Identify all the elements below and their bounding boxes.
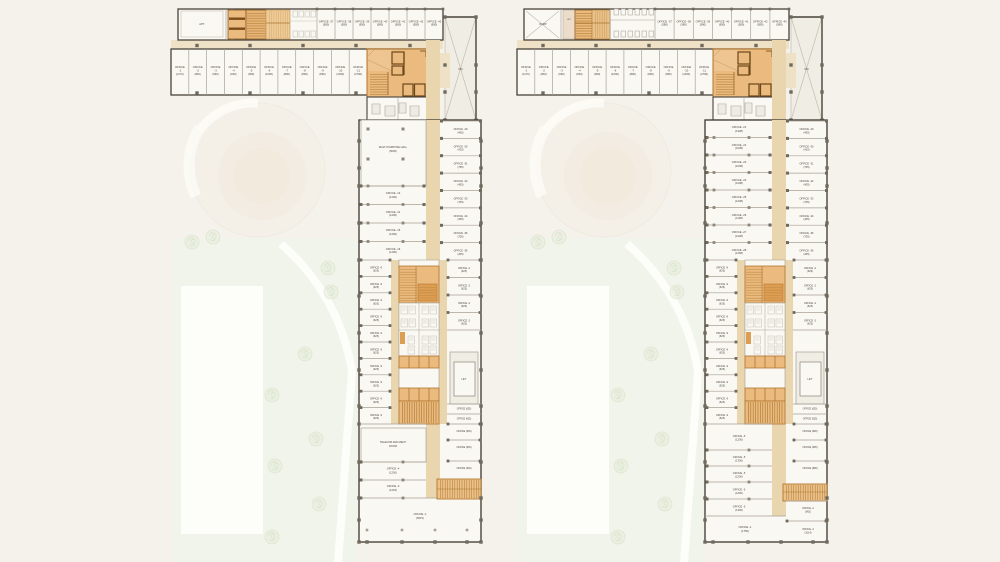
svg-text:(625): (625) bbox=[373, 286, 379, 289]
svg-text:OFFICE -2: OFFICE -2 bbox=[802, 528, 814, 531]
svg-text:(625): (625) bbox=[719, 302, 725, 305]
svg-text:(580): (580) bbox=[359, 23, 365, 27]
svg-text:OFFICE -33: OFFICE -33 bbox=[800, 196, 815, 200]
svg-text:OFFICE: OFFICE bbox=[211, 65, 221, 69]
svg-text:(690): (690) bbox=[558, 72, 564, 76]
svg-text:STA: STA bbox=[804, 68, 809, 71]
svg-text:OFFICE: OFFICE bbox=[282, 65, 292, 69]
svg-text:(625): (625) bbox=[373, 270, 379, 273]
svg-text:OFFICE -21: OFFICE -21 bbox=[732, 125, 747, 129]
svg-text:OFFICE: OFFICE bbox=[699, 65, 709, 69]
svg-text:(625): (625) bbox=[719, 401, 725, 404]
svg-text:(630): (630) bbox=[576, 72, 582, 76]
svg-text:(1200): (1200) bbox=[389, 195, 397, 199]
svg-text:(580): (580) bbox=[661, 23, 667, 27]
svg-text:OFFICE -4: OFFICE -4 bbox=[387, 467, 400, 471]
svg-text:OFFICE -26: OFFICE -26 bbox=[732, 213, 747, 217]
svg-text:OFFICE -30: OFFICE -30 bbox=[454, 144, 469, 148]
svg-text:OFFICE: OFFICE bbox=[300, 65, 310, 69]
svg-text:(625): (625) bbox=[719, 335, 725, 338]
svg-text:OFFICE: OFFICE bbox=[521, 65, 531, 69]
svg-text:OFFICE -30: OFFICE -30 bbox=[800, 144, 815, 148]
svg-text:OFFICE (625): OFFICE (625) bbox=[803, 419, 818, 421]
svg-text:(705): (705) bbox=[457, 200, 463, 204]
svg-text:MULTI PURPOSE HALL: MULTI PURPOSE HALL bbox=[379, 145, 408, 149]
svg-text:RAMP: RAMP bbox=[540, 23, 547, 26]
svg-text:OFFICE: OFFICE bbox=[264, 65, 274, 69]
svg-text:(1000): (1000) bbox=[265, 72, 273, 76]
svg-text:(1238): (1238) bbox=[735, 199, 743, 203]
svg-text:(705): (705) bbox=[803, 200, 809, 204]
svg-text:OFFICE -29: OFFICE -29 bbox=[800, 127, 815, 131]
svg-text:OFFICE: OFFICE bbox=[335, 65, 345, 69]
svg-text:(625): (625) bbox=[719, 270, 725, 273]
svg-text:(890): (890) bbox=[630, 72, 636, 76]
svg-text:(580): (580) bbox=[776, 23, 782, 27]
svg-text:(580): (580) bbox=[681, 23, 687, 27]
svg-text:(405): (405) bbox=[457, 252, 463, 256]
svg-text:(5000): (5000) bbox=[389, 149, 397, 153]
svg-text:(890): (890) bbox=[301, 72, 307, 76]
svg-text:(625): (625) bbox=[719, 286, 725, 289]
svg-text:OFFICE: OFFICE bbox=[193, 65, 203, 69]
svg-text:(1750): (1750) bbox=[741, 529, 749, 533]
svg-text:OFFICE -32: OFFICE -32 bbox=[454, 179, 469, 183]
svg-text:(580): (580) bbox=[377, 23, 383, 27]
svg-text:(890): (890) bbox=[319, 72, 325, 76]
svg-text:OFFICE -36: OFFICE -36 bbox=[454, 249, 469, 253]
svg-text:OFFICE -14: OFFICE -14 bbox=[386, 210, 401, 214]
svg-text:STA: STA bbox=[458, 68, 463, 71]
svg-text:OFFICE -28: OFFICE -28 bbox=[732, 248, 747, 252]
svg-text:OFFICE: OFFICE bbox=[681, 65, 691, 69]
svg-text:(705): (705) bbox=[803, 235, 809, 239]
svg-text:(890): (890) bbox=[665, 72, 671, 76]
svg-text:(1200): (1200) bbox=[735, 475, 743, 479]
svg-text:(1138): (1138) bbox=[735, 216, 743, 220]
svg-text:OFFICE -15: OFFICE -15 bbox=[386, 228, 401, 232]
svg-text:(405): (405) bbox=[803, 217, 809, 221]
svg-text:OFFICE -5: OFFICE -5 bbox=[733, 434, 746, 438]
svg-text:OFFICE (930): OFFICE (930) bbox=[456, 467, 471, 470]
svg-text:(1090): (1090) bbox=[336, 72, 344, 76]
svg-text:OFFICE -33: OFFICE -33 bbox=[454, 196, 469, 200]
svg-text:(405): (405) bbox=[457, 182, 463, 186]
svg-text:(1218): (1218) bbox=[389, 488, 397, 492]
svg-text:(625): (625) bbox=[461, 270, 467, 273]
svg-text:(840): (840) bbox=[541, 72, 547, 76]
svg-text:TELECOM AND MECH: TELECOM AND MECH bbox=[380, 441, 406, 444]
svg-text:(405): (405) bbox=[803, 130, 809, 134]
svg-text:(863): (863) bbox=[805, 511, 811, 514]
svg-text:(705): (705) bbox=[803, 165, 809, 169]
svg-text:OFFICE: OFFICE bbox=[646, 65, 656, 69]
svg-text:OFFICE -34: OFFICE -34 bbox=[454, 214, 469, 218]
svg-text:(1200): (1200) bbox=[389, 250, 397, 254]
svg-text:OFFICE -31: OFFICE -31 bbox=[454, 162, 469, 166]
svg-text:(625): (625) bbox=[461, 288, 467, 291]
svg-text:(1268): (1268) bbox=[735, 251, 743, 255]
svg-text:(625): (625) bbox=[373, 352, 379, 355]
svg-text:(705): (705) bbox=[457, 235, 463, 239]
svg-text:(1306): (1306) bbox=[735, 508, 743, 512]
svg-text:LIFT: LIFT bbox=[462, 378, 467, 381]
svg-text:(405): (405) bbox=[457, 130, 463, 134]
svg-text:(705): (705) bbox=[457, 165, 463, 169]
svg-text:OFFICE -35: OFFICE -35 bbox=[454, 231, 469, 235]
svg-text:OFFICE -1: OFFICE -1 bbox=[739, 525, 752, 529]
svg-text:(1000): (1000) bbox=[611, 72, 619, 76]
svg-text:(1238): (1238) bbox=[735, 181, 743, 185]
svg-text:(625): (625) bbox=[807, 323, 813, 326]
svg-text:(1200): (1200) bbox=[735, 438, 743, 442]
svg-text:(580): (580) bbox=[719, 23, 725, 27]
svg-text:(580): (580) bbox=[323, 23, 329, 27]
svg-text:OFFICE -24: OFFICE -24 bbox=[732, 178, 747, 182]
svg-text:OFFICE: OFFICE bbox=[539, 65, 549, 69]
svg-text:OFFICE -32: OFFICE -32 bbox=[800, 179, 815, 183]
svg-text:(625): (625) bbox=[719, 368, 725, 371]
svg-text:(580): (580) bbox=[341, 23, 347, 27]
svg-text:(580): (580) bbox=[738, 23, 744, 27]
svg-text:OFFICE -29: OFFICE -29 bbox=[454, 127, 469, 131]
svg-text:OFFICE -27: OFFICE -27 bbox=[732, 230, 747, 234]
svg-text:OFFICE: OFFICE bbox=[318, 65, 328, 69]
svg-text:OFFICE (625): OFFICE (625) bbox=[457, 419, 472, 421]
svg-text:OFFICE: OFFICE bbox=[246, 65, 256, 69]
svg-text:(1014): (1014) bbox=[805, 532, 812, 535]
svg-text:(1090): (1090) bbox=[682, 72, 690, 76]
svg-text:OFFICE (898): OFFICE (898) bbox=[802, 467, 817, 470]
svg-text:OFFICE (930): OFFICE (930) bbox=[456, 430, 471, 433]
svg-text:APT.: APT. bbox=[199, 22, 205, 26]
svg-text:OFFICE -36: OFFICE -36 bbox=[800, 249, 815, 253]
svg-text:OFFICE: OFFICE bbox=[610, 65, 620, 69]
svg-text:OFFICE (930): OFFICE (930) bbox=[456, 446, 471, 449]
svg-text:OFFICE -31: OFFICE -31 bbox=[800, 162, 815, 166]
svg-text:(410): (410) bbox=[803, 148, 809, 152]
svg-text:(625): (625) bbox=[807, 305, 813, 308]
svg-text:(1170): (1170) bbox=[522, 72, 530, 76]
svg-text:(2790): (2790) bbox=[354, 72, 362, 76]
svg-text:(580): (580) bbox=[395, 23, 401, 27]
svg-text:LIFT: LIFT bbox=[808, 378, 813, 381]
svg-text:OFFICE -5: OFFICE -5 bbox=[733, 455, 746, 459]
svg-text:(690): (690) bbox=[594, 72, 600, 76]
svg-text:(1306): (1306) bbox=[735, 459, 743, 463]
svg-text:(890): (890) bbox=[284, 72, 290, 76]
svg-text:(625): (625) bbox=[461, 323, 467, 326]
svg-text:(625): (625) bbox=[373, 335, 379, 338]
svg-text:(1170): (1170) bbox=[176, 72, 184, 76]
svg-text:(840): (840) bbox=[195, 72, 201, 76]
svg-text:(625): (625) bbox=[719, 319, 725, 322]
svg-text:(625): (625) bbox=[719, 384, 725, 387]
svg-text:OFFICE: OFFICE bbox=[353, 65, 363, 69]
svg-text:OFFICE -16: OFFICE -16 bbox=[386, 247, 401, 251]
svg-text:(625): (625) bbox=[373, 302, 379, 305]
svg-text:-10: -10 bbox=[338, 69, 342, 73]
svg-text:(1038): (1038) bbox=[735, 146, 743, 150]
svg-text:(405): (405) bbox=[457, 217, 463, 221]
svg-text:OFFICE: OFFICE bbox=[574, 65, 584, 69]
svg-text:(1238): (1238) bbox=[735, 234, 743, 238]
svg-text:OFFICE -34: OFFICE -34 bbox=[800, 214, 815, 218]
svg-text:(625): (625) bbox=[373, 319, 379, 322]
svg-text:OFFICE -35: OFFICE -35 bbox=[800, 231, 815, 235]
svg-text:OFFICE -2: OFFICE -2 bbox=[802, 507, 814, 510]
svg-text:(580): (580) bbox=[431, 23, 437, 27]
svg-text:OFFICE -5: OFFICE -5 bbox=[733, 471, 746, 475]
svg-text:(625): (625) bbox=[373, 384, 379, 387]
svg-text:OFFICE -25: OFFICE -25 bbox=[732, 195, 747, 199]
svg-text:(580): (580) bbox=[413, 23, 419, 27]
svg-text:(1328): (1328) bbox=[735, 129, 743, 133]
svg-text:OFFICE -23: OFFICE -23 bbox=[732, 160, 747, 164]
svg-text:OFFICE: OFFICE bbox=[228, 65, 238, 69]
svg-text:-11: -11 bbox=[702, 69, 706, 73]
svg-text:-11: -11 bbox=[356, 69, 360, 73]
svg-text:OFFICE (695): OFFICE (695) bbox=[802, 446, 817, 449]
svg-text:OFFICE: OFFICE bbox=[628, 65, 638, 69]
svg-text:(580): (580) bbox=[757, 23, 763, 27]
svg-text:OFFICE -3: OFFICE -3 bbox=[387, 484, 400, 488]
svg-text:OFFICE: OFFICE bbox=[557, 65, 567, 69]
svg-text:OFFICE -22: OFFICE -22 bbox=[732, 143, 747, 147]
svg-text:(625): (625) bbox=[373, 368, 379, 371]
svg-text:(625): (625) bbox=[461, 305, 467, 308]
svg-text:OFFICE (625): OFFICE (625) bbox=[457, 409, 472, 411]
svg-text:-10: -10 bbox=[684, 69, 688, 73]
svg-text:(890): (890) bbox=[647, 72, 653, 76]
svg-text:(5615): (5615) bbox=[416, 516, 424, 520]
svg-text:OFFICE -1: OFFICE -1 bbox=[414, 512, 427, 516]
svg-text:(1038): (1038) bbox=[735, 164, 743, 168]
svg-text:(405): (405) bbox=[803, 182, 809, 186]
svg-text:OFFICE (828): OFFICE (828) bbox=[802, 430, 817, 433]
svg-text:(1200): (1200) bbox=[735, 491, 743, 495]
svg-text:(405): (405) bbox=[803, 252, 809, 256]
svg-text:OFFICE -5: OFFICE -5 bbox=[733, 505, 746, 509]
svg-text:(625): (625) bbox=[807, 288, 813, 291]
svg-text:(625): (625) bbox=[373, 401, 379, 404]
svg-text:(1206): (1206) bbox=[389, 232, 397, 236]
svg-text:OFFICE (625): OFFICE (625) bbox=[803, 409, 818, 411]
svg-text:OFFICE -13: OFFICE -13 bbox=[386, 191, 401, 195]
svg-text:(625): (625) bbox=[373, 417, 379, 420]
svg-text:ROOM: ROOM bbox=[389, 445, 397, 448]
svg-text:(410): (410) bbox=[457, 148, 463, 152]
svg-text:(1206): (1206) bbox=[389, 213, 397, 217]
svg-text:(1200): (1200) bbox=[389, 471, 397, 475]
svg-text:(625): (625) bbox=[719, 417, 725, 420]
svg-text:(625): (625) bbox=[807, 270, 813, 273]
svg-text:(690): (690) bbox=[248, 72, 254, 76]
svg-text:(2790): (2790) bbox=[700, 72, 708, 76]
svg-text:(630): (630) bbox=[230, 72, 236, 76]
svg-text:OFFICE: OFFICE bbox=[592, 65, 602, 69]
svg-text:OFFICE: OFFICE bbox=[664, 65, 674, 69]
svg-text:OFFICE -5: OFFICE -5 bbox=[733, 488, 746, 492]
svg-text:(625): (625) bbox=[719, 352, 725, 355]
svg-text:(580): (580) bbox=[700, 23, 706, 27]
svg-text:(690): (690) bbox=[212, 72, 218, 76]
svg-text:OFFICE: OFFICE bbox=[175, 65, 185, 69]
